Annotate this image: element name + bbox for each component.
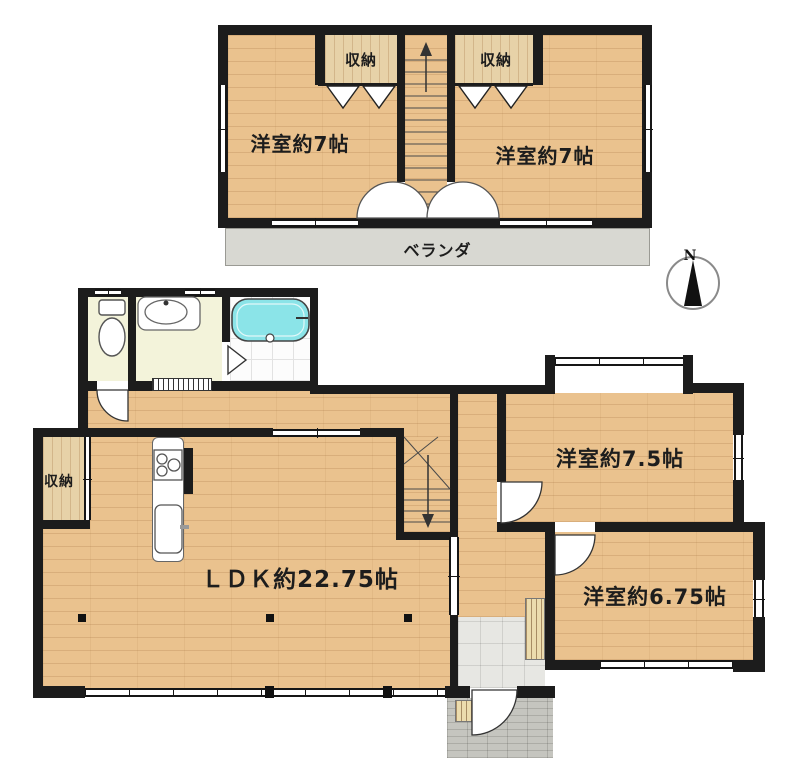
window [644, 85, 652, 172]
wall [33, 520, 90, 529]
pillar [78, 614, 86, 622]
window [600, 660, 733, 669]
window [185, 289, 215, 296]
wall [218, 25, 652, 35]
wall [78, 288, 88, 428]
veranda-label: ベランダ [355, 237, 520, 261]
bathroom-floor [230, 296, 310, 381]
compass-north-label: N [684, 248, 697, 264]
wall [753, 522, 765, 580]
wall [517, 686, 555, 698]
window [272, 219, 358, 227]
closet1f-label: 収納 [30, 471, 88, 491]
wall [33, 428, 43, 690]
wall [396, 428, 404, 540]
wall [445, 686, 470, 698]
floor2-room-left-label: 洋室約7帖 [210, 128, 390, 157]
window [95, 289, 121, 296]
toilet-room-floor [88, 296, 128, 381]
ldk-label: ＬＤＫ約22.75帖 [145, 560, 455, 594]
wall [450, 385, 458, 537]
wall [733, 660, 765, 672]
room675-label: 洋室約6.75帖 [535, 581, 775, 611]
wall [128, 296, 136, 382]
floor2-closet-right-label: 収納 [458, 49, 534, 70]
pillar [265, 686, 274, 698]
wall [318, 385, 549, 394]
wall [78, 381, 97, 391]
hall-east-floor [458, 394, 497, 532]
window [734, 435, 743, 480]
stairs1f-floor [404, 437, 450, 532]
wall [318, 83, 397, 86]
washroom-sliding-door [152, 378, 212, 391]
room75-label: 洋室約7.5帖 [505, 443, 735, 473]
floor2-room-right-label: 洋室約7帖 [455, 140, 635, 169]
wall [397, 35, 405, 182]
wall [310, 288, 318, 394]
washroom-floor [136, 296, 222, 381]
floor-plan: N 洋室約7帖 洋室約7帖 収納 収納 ベランダ ＬＤＫ約22.75帖 洋室約7… [0, 0, 800, 783]
window [500, 219, 592, 227]
compass-icon: N [667, 248, 719, 309]
bathroom-door-opening [222, 342, 230, 381]
floor2-stairwell-floor [405, 35, 447, 218]
floor2-closet-left-label: 収納 [324, 49, 398, 70]
interior-window [273, 429, 360, 437]
porch-step [455, 700, 475, 722]
wall [733, 383, 744, 435]
wall [212, 381, 318, 391]
wall [545, 660, 600, 670]
wall [455, 83, 533, 86]
wall [497, 522, 555, 532]
wall [545, 355, 555, 394]
bay-window [555, 357, 683, 366]
wall [128, 381, 152, 391]
pillar [266, 614, 274, 622]
kitchen-counter [152, 437, 184, 562]
wall [33, 428, 273, 437]
wall [447, 35, 455, 182]
wall [33, 686, 85, 698]
wall [595, 522, 763, 532]
pillar [383, 686, 392, 698]
wall [533, 35, 543, 85]
kitchen-partition [184, 448, 193, 494]
pillar [404, 614, 412, 622]
wall [450, 615, 458, 695]
